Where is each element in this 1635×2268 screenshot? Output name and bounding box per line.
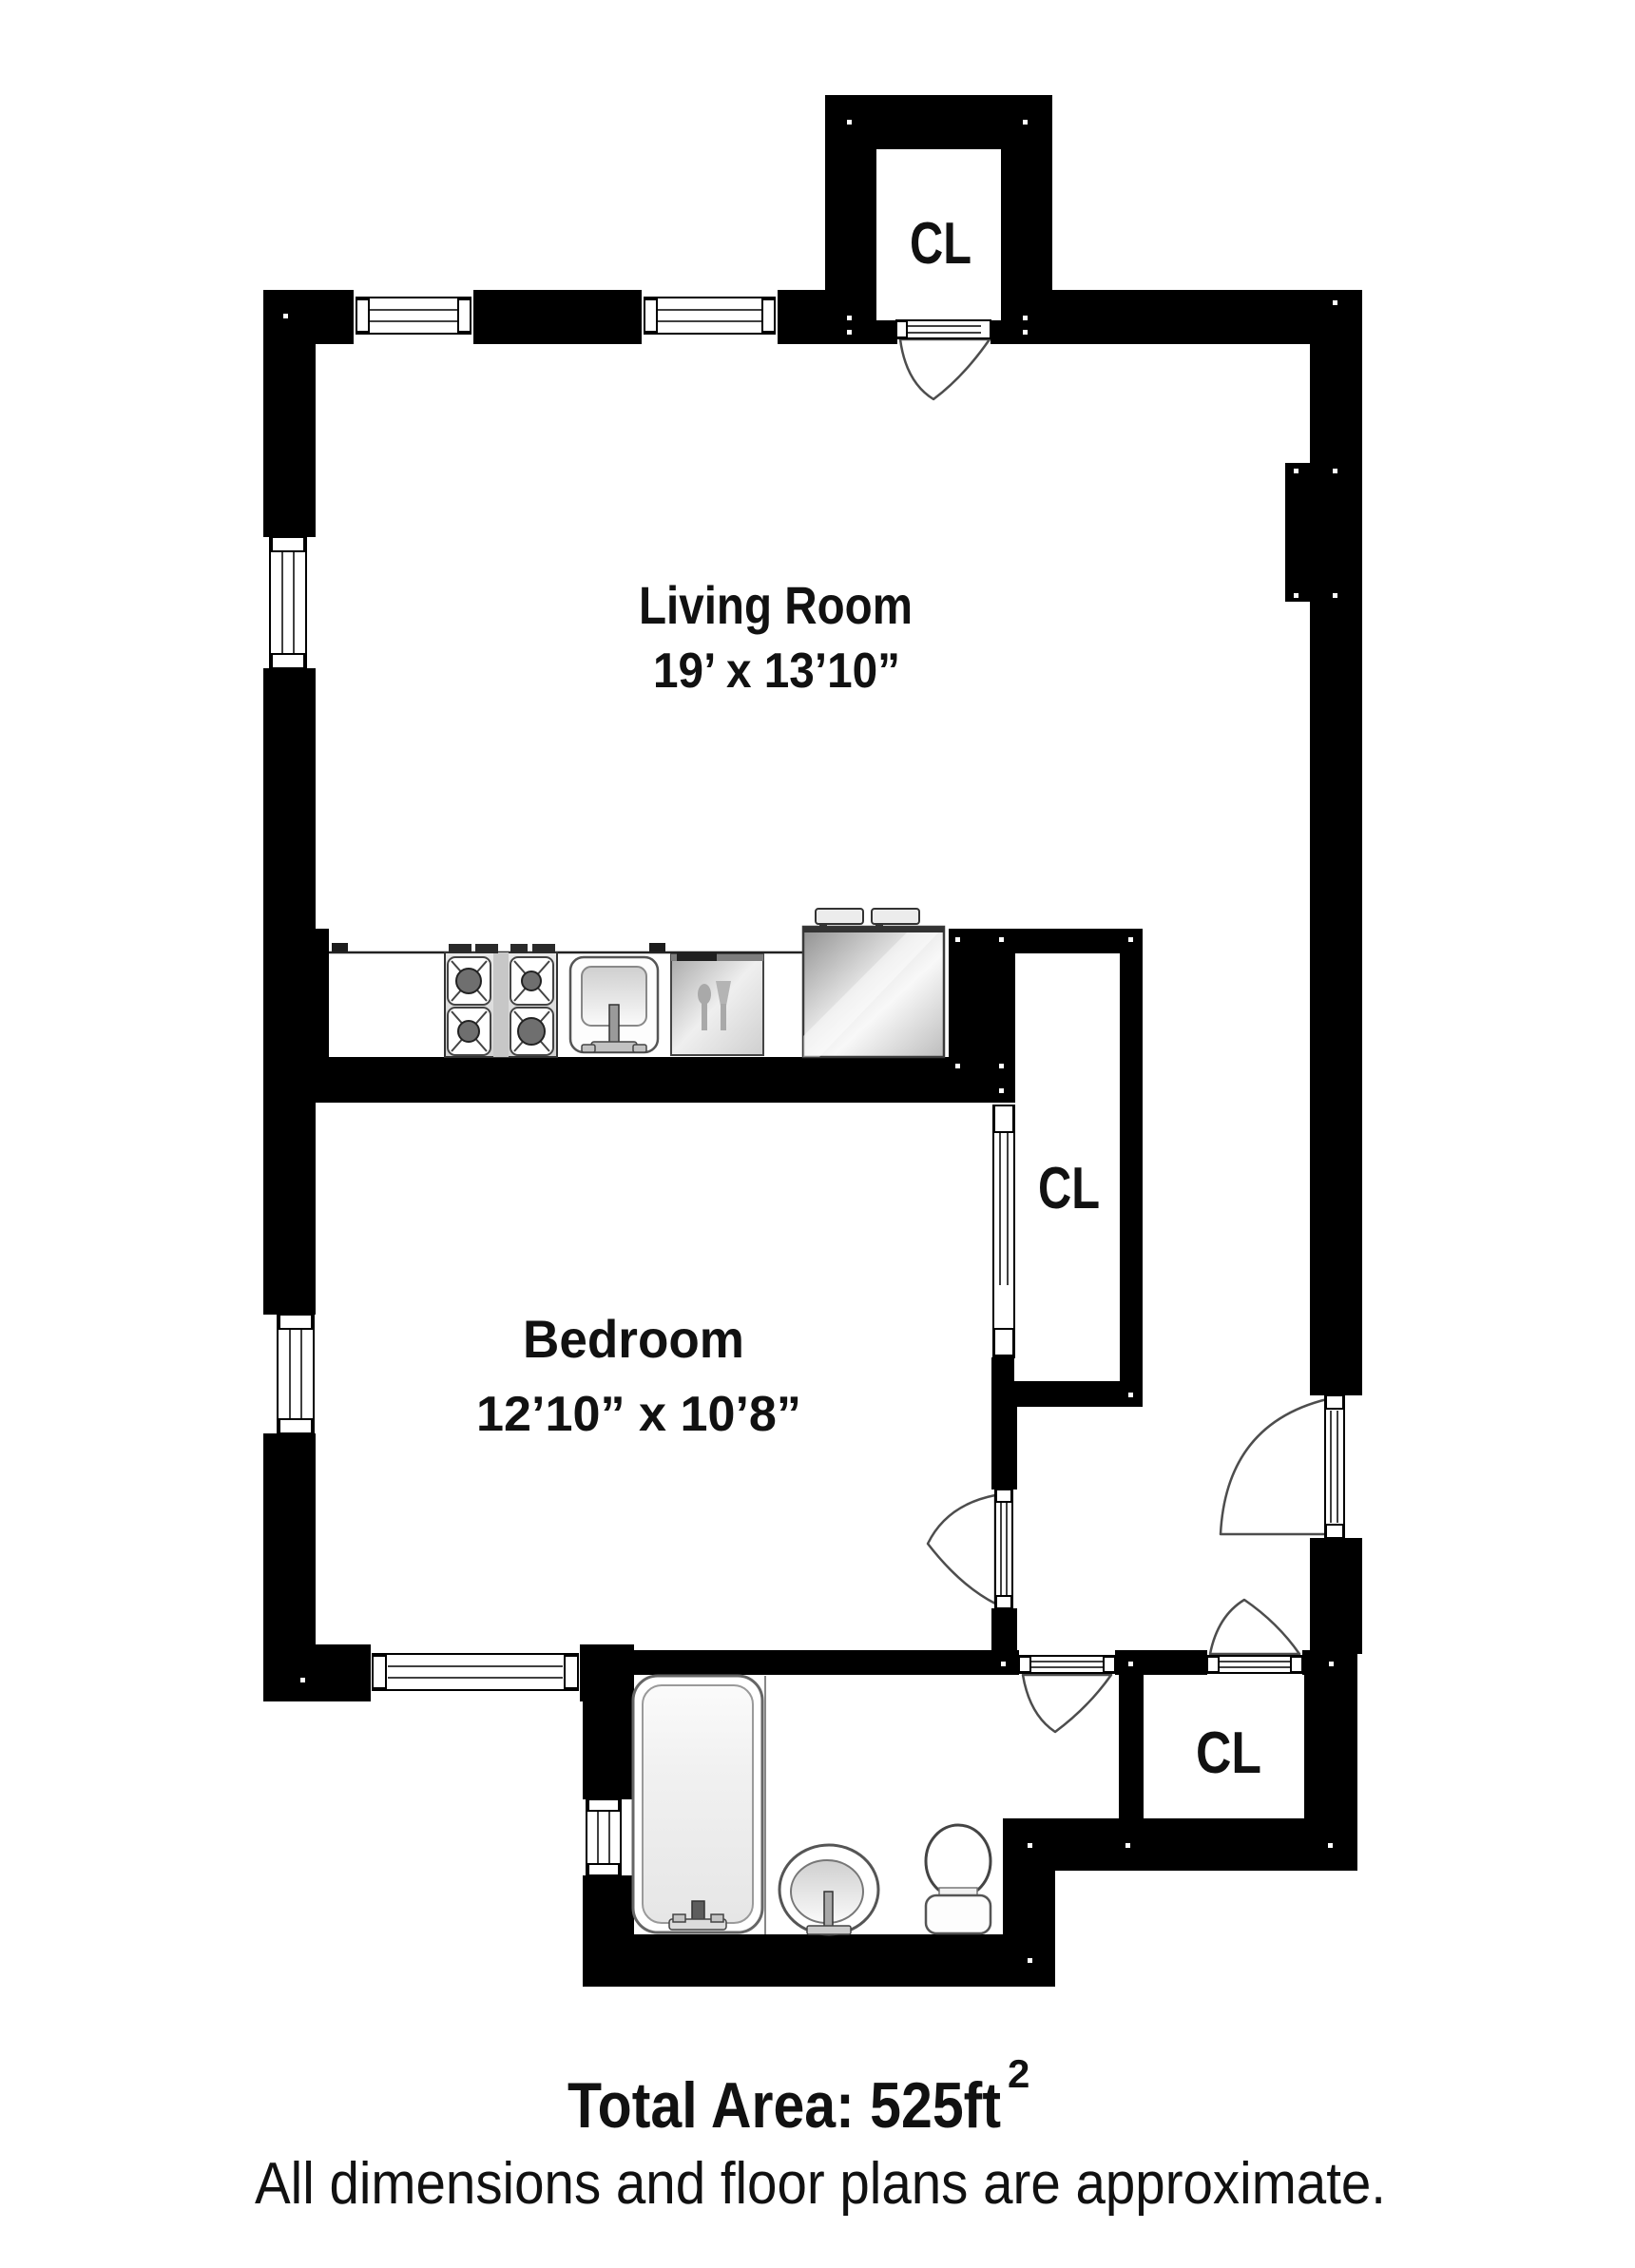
wall-segment — [825, 95, 876, 344]
node-dot — [1128, 937, 1133, 942]
node-dot — [1023, 120, 1028, 125]
wall-segment — [1052, 290, 1362, 344]
window-icon — [373, 1654, 578, 1690]
wall-segment — [1119, 1650, 1144, 1818]
wall-segment — [263, 344, 316, 537]
wall-segment — [1310, 1538, 1362, 1654]
door-swing-icon — [928, 1495, 995, 1604]
wall-segment — [1001, 95, 1052, 344]
wall-segment — [1310, 602, 1362, 1395]
node-dot — [1001, 1662, 1006, 1666]
node-dot — [1294, 469, 1298, 473]
wall-segment — [778, 290, 825, 344]
floor-plan-canvas: Living Room 19’ x 13’10” Bedroom 12’10” … — [0, 0, 1635, 2268]
node-dot — [283, 314, 288, 318]
toilet-icon — [926, 1825, 991, 1933]
node-dot — [1294, 593, 1298, 598]
wall-segment — [473, 290, 642, 344]
node-dot — [955, 937, 960, 942]
node-dot — [1333, 469, 1337, 473]
door-leaf-icon — [896, 320, 991, 338]
bedroom-label: Bedroom — [523, 1309, 744, 1369]
wall-segment — [991, 1407, 1017, 1490]
living-room-label: Living Room — [639, 575, 913, 635]
window-icon — [278, 1315, 314, 1433]
total-area-superscript: 2 — [1008, 2051, 1029, 2096]
node-dot — [847, 330, 852, 335]
window-icon — [356, 298, 471, 334]
wall-segment — [263, 1057, 1015, 1103]
wall-segment — [1120, 929, 1143, 1407]
wall-segment — [580, 1644, 634, 1701]
node-dot — [300, 1678, 305, 1682]
disclaimer-text: All dimensions and floor plans are appro… — [255, 2151, 1386, 2217]
door-swing-icon — [1221, 1399, 1328, 1534]
door-leaf-icon — [1325, 1395, 1344, 1538]
node-dot — [847, 120, 852, 125]
wall-segment — [583, 1934, 1055, 1987]
node-dot — [999, 937, 1004, 942]
cabinet-handle-icon — [332, 943, 348, 951]
wall-segment — [1144, 1650, 1207, 1675]
wall-segment — [1285, 463, 1362, 602]
node-dot — [1023, 316, 1028, 320]
stove-burners-icon — [445, 944, 557, 1057]
living-room-dimensions: 19’ x 13’10” — [653, 644, 900, 699]
node-dot — [1333, 593, 1337, 598]
closet-middle-label: CL — [1038, 1156, 1100, 1221]
wall-segment — [991, 1357, 1014, 1407]
node-dot — [1125, 1843, 1130, 1848]
footer: Total Area: 525ft 2 All dimensions and f… — [255, 2051, 1386, 2217]
bathtub-icon — [633, 1676, 762, 1932]
closet-top-label: CL — [910, 211, 971, 277]
wall-segment — [583, 1701, 634, 1799]
refrigerator-icon — [803, 909, 944, 1057]
wall-segment — [263, 1433, 316, 1644]
door-swing-icon — [900, 339, 990, 399]
wall-segment — [949, 929, 1015, 1103]
door-leaf-icon — [1207, 1656, 1302, 1673]
bedroom-dimensions: 12’10” x 10’8” — [476, 1387, 801, 1442]
window-icon — [270, 537, 306, 668]
node-dot — [1329, 1662, 1334, 1666]
total-area-text: Total Area: 525ft — [567, 2069, 1001, 2142]
window-icon — [644, 298, 775, 334]
sliding-door-icon — [993, 1105, 1014, 1357]
window-icon — [587, 1799, 621, 1875]
node-dot — [847, 316, 852, 320]
wall-segment — [263, 1644, 371, 1701]
node-dot — [999, 1088, 1004, 1093]
door-leaf-icon — [1019, 1656, 1115, 1673]
wall-segment — [1310, 344, 1362, 463]
node-dot — [1128, 1393, 1133, 1397]
node-dot — [999, 1064, 1004, 1068]
cabinet-handle-icon — [649, 943, 665, 951]
node-dot — [955, 1064, 960, 1068]
node-dot — [1128, 1662, 1133, 1666]
wall-segment — [949, 929, 1143, 953]
wall-segment — [263, 290, 354, 344]
node-dot — [1333, 300, 1337, 305]
closet-bottom-label: CL — [1196, 1720, 1261, 1786]
door-swing-icon — [1210, 1600, 1299, 1654]
door-leaf-icon — [995, 1490, 1012, 1608]
kitchen-fixtures — [329, 909, 944, 1057]
wall-segment — [876, 320, 897, 344]
door-swing-icon — [1023, 1675, 1111, 1732]
wall-segment — [583, 1875, 634, 1934]
dishwasher-icon — [671, 951, 763, 1055]
wall-segment — [1304, 1654, 1357, 1871]
bathroom-sink-icon — [779, 1845, 878, 1934]
kitchen-sink-icon — [570, 957, 658, 1052]
node-dot — [1028, 1958, 1032, 1963]
node-dot — [1023, 330, 1028, 335]
wall-segment — [991, 320, 1001, 344]
bathroom-fixtures — [633, 1676, 991, 1934]
node-dot — [1328, 1843, 1333, 1848]
floor-plan-page: Living Room 19’ x 13’10” Bedroom 12’10” … — [0, 0, 1635, 2268]
wall-segment — [634, 1650, 1019, 1675]
node-dot — [1028, 1843, 1032, 1848]
